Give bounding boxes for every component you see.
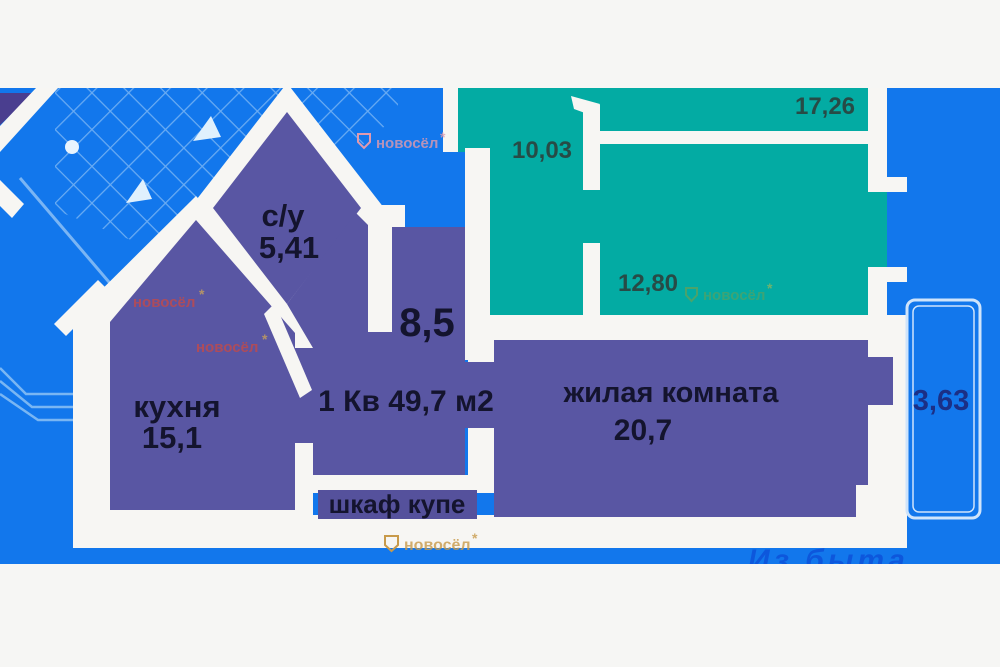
neighbor-room-label: 12,80 <box>618 270 678 297</box>
watermark-brand: новосёл <box>376 135 438 152</box>
neighbor-room-label: 10,03 <box>512 137 572 164</box>
watermark-star: * <box>199 286 205 302</box>
floor-plan: с/у 5,41 8,5 кухня 15,1 1 Кв 49,7 м2 жил… <box>0 0 1000 667</box>
floor-plan-page: с/у 5,41 8,5 кухня 15,1 1 Кв 49,7 м2 жил… <box>0 0 1000 667</box>
bathroom-area-label: 5,41 <box>259 230 319 265</box>
room-living <box>494 340 872 517</box>
kitchen-name-label: кухня <box>133 389 220 424</box>
bathroom-name-label: с/у <box>261 198 305 233</box>
balcony-door-opening <box>872 357 893 405</box>
room-hall <box>392 227 465 475</box>
living-name-label: жилая комната <box>563 377 780 409</box>
watermark-brand: новосёл <box>196 339 258 356</box>
dot-marker <box>65 140 79 154</box>
watermark-star: * <box>472 530 478 546</box>
neighbor-room-label: 17,26 <box>795 93 855 120</box>
watermark-star: * <box>262 331 268 347</box>
wardrobe-label: шкаф купе <box>329 489 466 519</box>
balcony-area-label: 3,63 <box>913 385 969 417</box>
watermark-star: * <box>440 129 446 145</box>
watermark-script: Из быта <box>748 544 909 577</box>
living-area-label: 20,7 <box>614 414 672 447</box>
hall-area-label: 8,5 <box>399 301 455 345</box>
kitchen-area-label: 15,1 <box>142 420 202 455</box>
watermark-brand: новосёл <box>703 287 765 304</box>
watermark-brand: новосёл <box>404 537 471 554</box>
watermark-brand: новосёл <box>133 294 195 311</box>
watermark-star: * <box>767 280 773 296</box>
apartment-title-label: 1 Кв 49,7 м2 <box>318 385 494 418</box>
